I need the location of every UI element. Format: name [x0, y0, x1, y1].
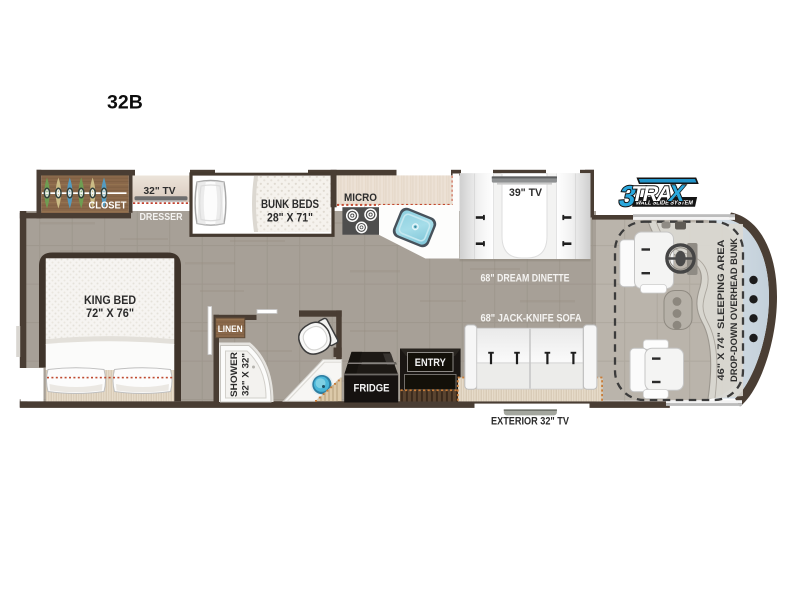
- svg-text:FRIDGE: FRIDGE: [354, 383, 390, 395]
- svg-text:DROP-DOWN OVERHEAD BUNK: DROP-DOWN OVERHEAD BUNK: [729, 238, 739, 382]
- svg-text:ENTRY: ENTRY: [415, 357, 447, 369]
- svg-text:DRESSER: DRESSER: [140, 211, 183, 223]
- svg-text:KING BED: KING BED: [84, 293, 136, 307]
- svg-text:32" TV: 32" TV: [144, 185, 176, 197]
- svg-text:28" X 71": 28" X 71": [267, 213, 313, 225]
- svg-text:32B: 32B: [107, 92, 143, 114]
- svg-text:32" X 32": 32" X 32": [240, 353, 250, 396]
- svg-text:EXTERIOR 32" TV: EXTERIOR 32" TV: [491, 415, 570, 427]
- svg-text:72" X 76": 72" X 76": [86, 306, 134, 320]
- svg-text:68" DREAM DINETTE: 68" DREAM DINETTE: [481, 273, 570, 285]
- svg-text:SHOWER: SHOWER: [229, 352, 239, 397]
- svg-text:68" JACK-KNIFE SOFA: 68" JACK-KNIFE SOFA: [481, 312, 582, 324]
- svg-text:39" TV: 39" TV: [509, 187, 543, 199]
- svg-text:CLOSET: CLOSET: [89, 200, 128, 212]
- svg-text:MICRO: MICRO: [344, 192, 377, 204]
- svg-text:BUNK BEDS: BUNK BEDS: [261, 199, 319, 211]
- svg-text:46" X 74" SLEEPING AREA: 46" X 74" SLEEPING AREA: [716, 239, 726, 380]
- svg-text:LINEN: LINEN: [218, 324, 243, 335]
